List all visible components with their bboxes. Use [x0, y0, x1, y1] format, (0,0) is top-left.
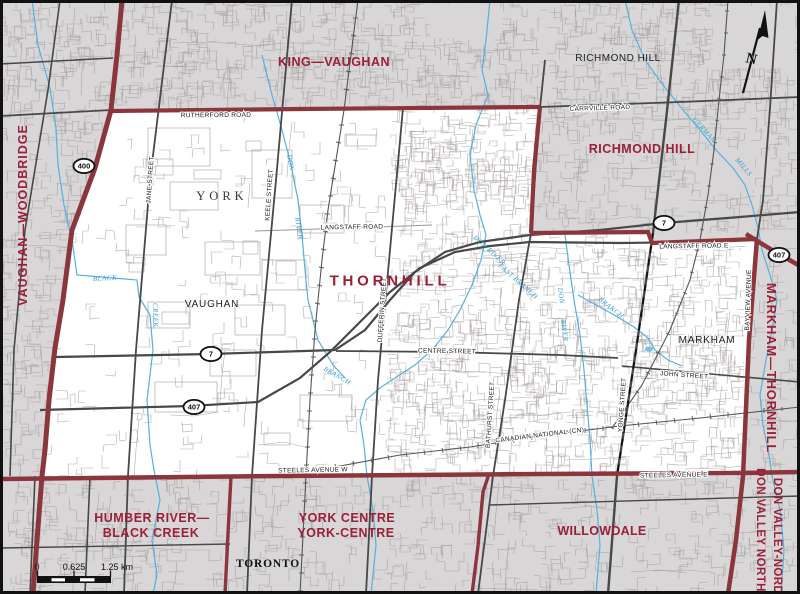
svg-text:CENTRE STREET: CENTRE STREET	[418, 347, 476, 355]
svg-text:7: 7	[209, 350, 213, 359]
svg-text:RUTHERFORD ROAD: RUTHERFORD ROAD	[181, 112, 252, 120]
svg-text:7: 7	[662, 219, 666, 228]
svg-text:CREEK: CREEK	[151, 303, 160, 328]
svg-text:1.25 km: 1.25 km	[101, 562, 133, 572]
svg-text:LANGSTAFF ROAD E: LANGSTAFF ROAD E	[659, 242, 729, 250]
svg-text:STEELES AVENUE E: STEELES AVENUE E	[640, 471, 708, 479]
svg-text:MARKHAM—THORNHILL: MARKHAM—THORNHILL	[764, 283, 779, 453]
svg-text:DON VALLEY NORTH—: DON VALLEY NORTH—	[754, 468, 766, 594]
svg-text:RICHMOND HILL: RICHMOND HILL	[575, 53, 660, 64]
svg-text:BLACK: BLACK	[93, 274, 118, 283]
svg-text:WILLOWDALE: WILLOWDALE	[557, 524, 646, 538]
svg-text:407: 407	[773, 251, 786, 260]
svg-text:THORNHILL: THORNHILL	[330, 273, 451, 290]
svg-text:VAUGHAN: VAUGHAN	[185, 299, 239, 310]
svg-text:RICHMOND HILL: RICHMOND HILL	[589, 142, 696, 156]
svg-text:400: 400	[78, 162, 91, 171]
svg-text:MARKHAM: MARKHAM	[679, 335, 736, 346]
svg-text:KING—VAUGHAN: KING—VAUGHAN	[278, 55, 390, 69]
svg-text:LANGSTAFF ROAD: LANGSTAFF ROAD	[321, 223, 384, 231]
svg-text:YORK-CENTRE: YORK-CENTRE	[297, 526, 394, 540]
svg-text:DON VALLEY-NORD: DON VALLEY-NORD	[771, 478, 783, 594]
svg-text:HUMBER RIVER—: HUMBER RIVER—	[94, 511, 210, 525]
svg-text:407: 407	[188, 403, 201, 412]
svg-text:BLACK CREEK: BLACK CREEK	[103, 526, 199, 540]
svg-text:YORK: YORK	[196, 189, 247, 203]
svg-text:YORK CENTRE: YORK CENTRE	[299, 511, 395, 525]
svg-text:TORONTO: TORONTO	[236, 558, 300, 570]
svg-text:VAUGHAN—WOODBRIDGE: VAUGHAN—WOODBRIDGE	[16, 124, 30, 306]
svg-text:STEELES AVENUE W: STEELES AVENUE W	[278, 466, 348, 474]
